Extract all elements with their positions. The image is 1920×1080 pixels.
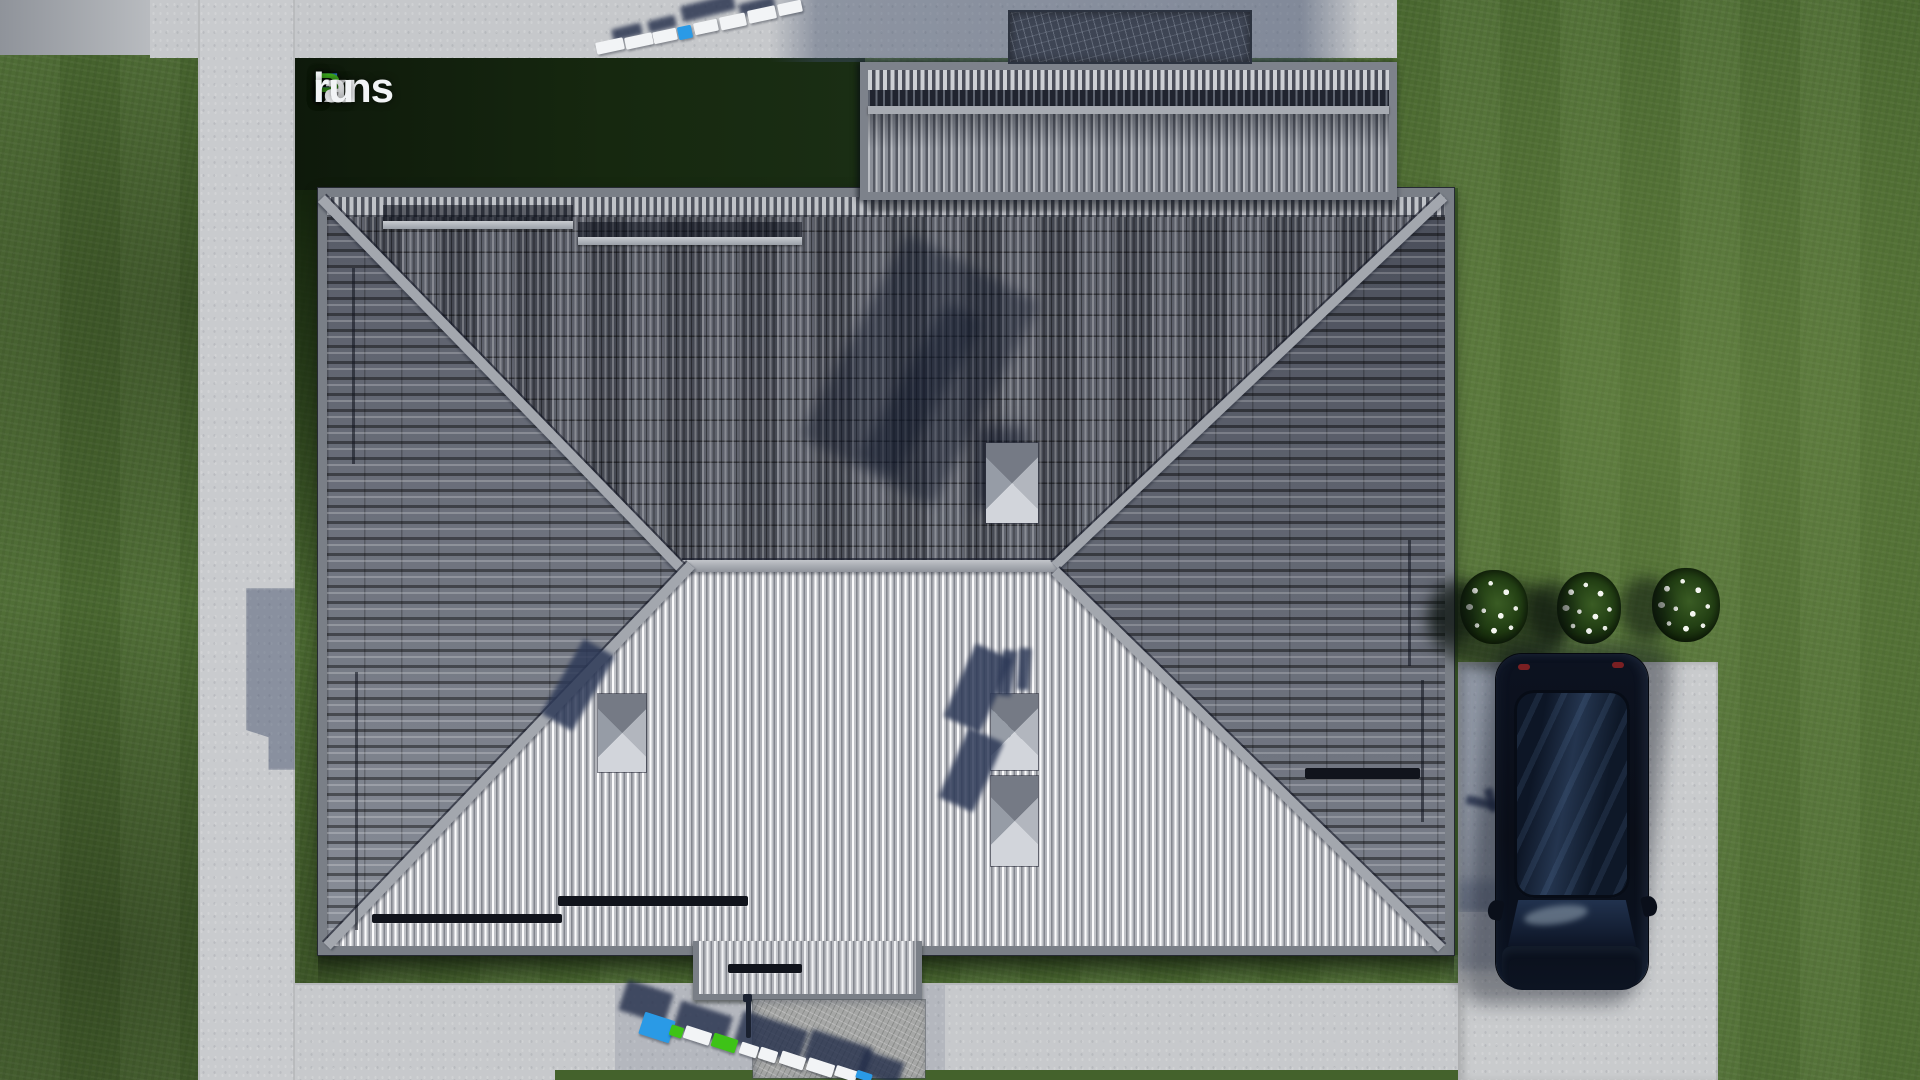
snow-stopper bbox=[728, 964, 802, 973]
sidewalk-top-corner bbox=[0, 0, 152, 55]
car-hood bbox=[1502, 946, 1642, 990]
sidewalk-left bbox=[198, 0, 295, 1080]
flower-bush bbox=[1460, 570, 1528, 644]
snow-stopper bbox=[372, 914, 562, 923]
grass-edge-strip bbox=[555, 1070, 1458, 1080]
strip-tile-field bbox=[868, 114, 1389, 192]
strip-ridge-bar bbox=[868, 106, 1389, 114]
ridge-cap-center bbox=[682, 560, 1060, 572]
flower-bush bbox=[1557, 572, 1621, 644]
chimney bbox=[986, 443, 1038, 523]
chimney bbox=[991, 694, 1038, 770]
snow-stopper bbox=[558, 896, 748, 906]
aerial-house-render: FixPlans.ru bbox=[0, 0, 1920, 1080]
strip-tile-ends bbox=[868, 70, 1389, 90]
snow-rail bbox=[578, 237, 802, 245]
logo-part: ru bbox=[313, 64, 353, 112]
car-taillight bbox=[1518, 664, 1530, 670]
car-taillight bbox=[1612, 662, 1624, 668]
flower-bush bbox=[1652, 568, 1720, 642]
snow-rail-vertical bbox=[355, 672, 358, 930]
strip-shadow-row bbox=[868, 90, 1389, 106]
secondary-lean-roof bbox=[860, 62, 1397, 200]
roof-hatch-shadow bbox=[383, 205, 573, 221]
car-roof-glass bbox=[1514, 690, 1630, 898]
stone-grate bbox=[1010, 12, 1250, 62]
porch-post bbox=[746, 998, 751, 1038]
roof-hatch-shadow bbox=[578, 222, 802, 237]
chimney bbox=[598, 694, 646, 772]
snow-rail bbox=[383, 221, 573, 229]
car-mirror-right bbox=[1640, 895, 1659, 918]
snow-rail-vertical bbox=[1408, 540, 1411, 666]
strip-roof-shadow bbox=[868, 200, 1397, 212]
parked-car bbox=[1490, 650, 1658, 1000]
snow-rail-vertical bbox=[352, 268, 355, 464]
chimney bbox=[991, 776, 1038, 866]
snow-rail-vertical bbox=[1421, 680, 1424, 822]
snow-stopper bbox=[1305, 768, 1420, 779]
porch-post-cap bbox=[743, 994, 752, 1002]
